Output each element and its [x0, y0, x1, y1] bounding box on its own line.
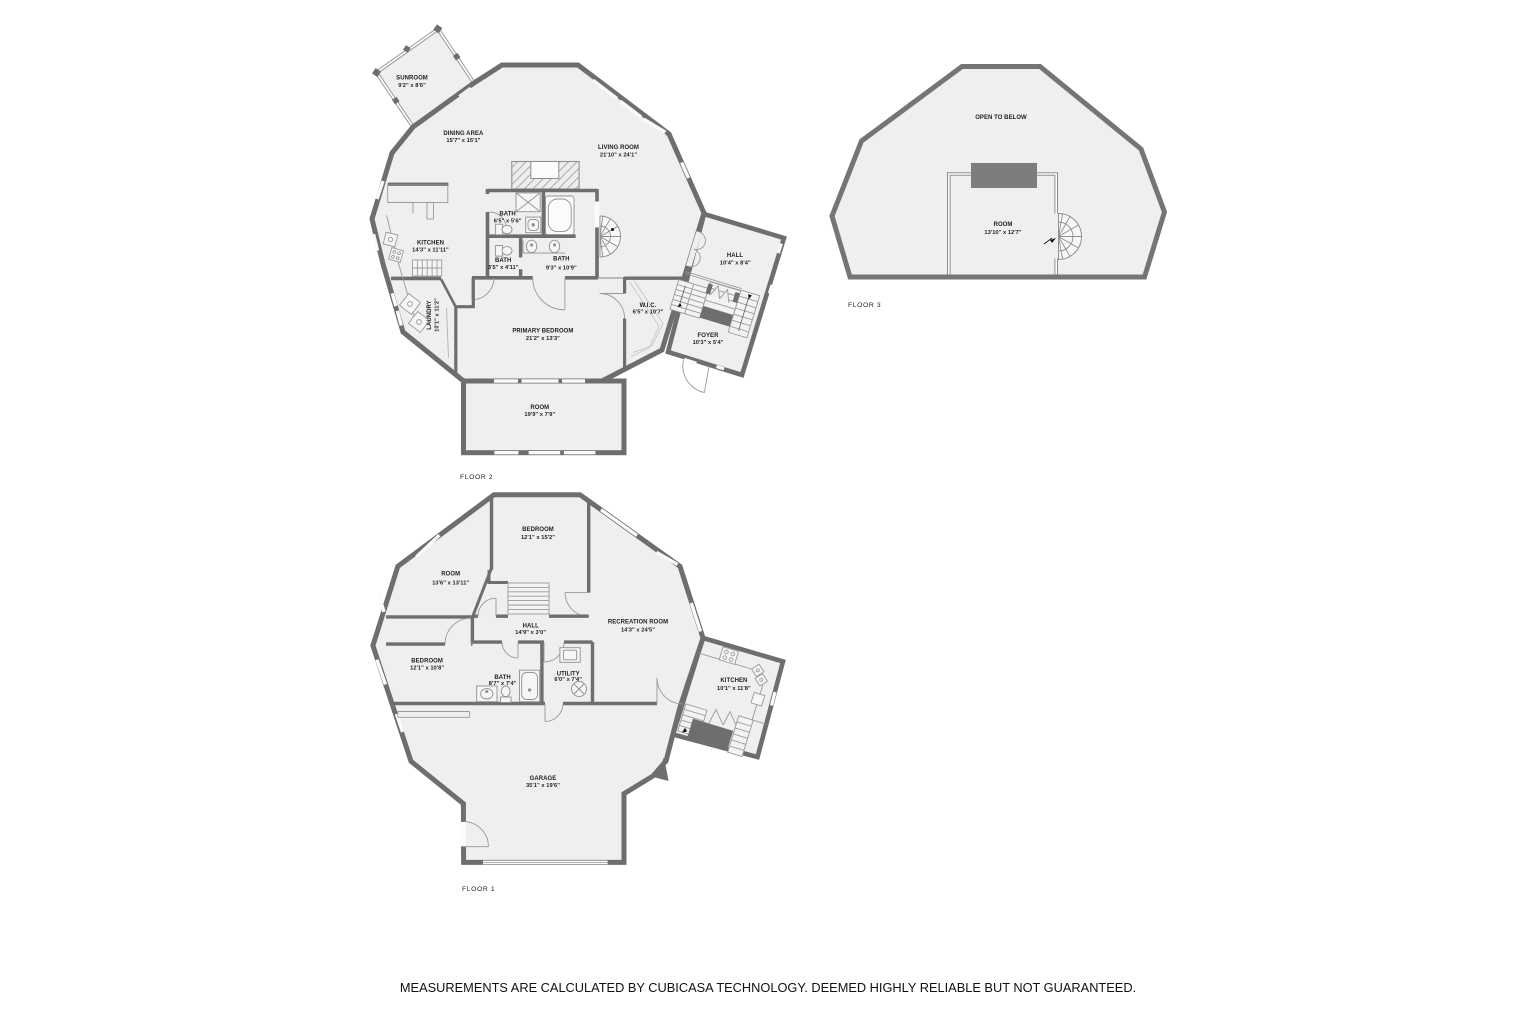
svg-text:BATH: BATH — [499, 212, 515, 218]
svg-text:HALL: HALL — [727, 253, 743, 259]
svg-text:HALL: HALL — [523, 624, 539, 630]
svg-text:14'9" x 3'0": 14'9" x 3'0" — [515, 630, 546, 636]
svg-text:14'3" x 24'5": 14'3" x 24'5" — [621, 628, 655, 634]
svg-text:ROOM: ROOM — [530, 405, 549, 411]
svg-text:9'2" x 8'6": 9'2" x 8'6" — [398, 83, 426, 89]
svg-text:10'3" x 5'4": 10'3" x 5'4" — [693, 340, 724, 346]
svg-text:8'7" x 7'4": 8'7" x 7'4" — [489, 681, 517, 687]
svg-text:BEDROOM: BEDROOM — [411, 659, 443, 665]
svg-text:FLOOR 1: FLOOR 1 — [462, 886, 495, 893]
svg-text:BATH: BATH — [495, 258, 511, 264]
svg-text:15'7" x 15'1": 15'7" x 15'1" — [446, 138, 480, 144]
svg-text:FLOOR 2: FLOOR 2 — [460, 474, 493, 481]
svg-text:13'6" x 13'11": 13'6" x 13'11" — [432, 581, 469, 587]
svg-text:ROOM: ROOM — [441, 572, 460, 578]
svg-text:21'10" x 24'1": 21'10" x 24'1" — [600, 152, 638, 158]
svg-text:W.I.C.: W.I.C. — [640, 303, 657, 309]
svg-text:13'10" x 12'7": 13'10" x 12'7" — [984, 230, 1022, 236]
svg-text:PRIMARY BEDROOM: PRIMARY BEDROOM — [512, 329, 573, 335]
svg-text:10'4" x 8'4": 10'4" x 8'4" — [720, 260, 751, 266]
svg-text:KITCHEN: KITCHEN — [417, 241, 444, 247]
svg-text:MEASUREMENTS ARE CALCULATED BY: MEASUREMENTS ARE CALCULATED BY CUBICASA … — [400, 980, 1136, 995]
svg-text:LIVING ROOM: LIVING ROOM — [598, 145, 639, 151]
svg-text:12'1" x 10'8": 12'1" x 10'8" — [410, 666, 444, 672]
svg-text:6'0" x 7'4": 6'0" x 7'4" — [554, 677, 582, 683]
svg-text:6'5" x 10'7": 6'5" x 10'7" — [633, 310, 664, 316]
svg-text:FLOOR 3: FLOOR 3 — [848, 302, 881, 309]
svg-text:KITCHEN: KITCHEN — [720, 678, 747, 684]
svg-text:12'1" x 15'2": 12'1" x 15'2" — [521, 535, 555, 541]
svg-text:14'3" x 11'11": 14'3" x 11'11" — [412, 248, 449, 254]
svg-text:21'2" x 13'3": 21'2" x 13'3" — [526, 336, 560, 342]
svg-text:OPEN TO BELOW: OPEN TO BELOW — [975, 115, 1027, 121]
svg-text:BATH: BATH — [553, 257, 569, 263]
svg-text:ROOM: ROOM — [994, 222, 1013, 228]
svg-text:35'1" x 19'6": 35'1" x 19'6" — [526, 783, 560, 789]
svg-text:RECREATION ROOM: RECREATION ROOM — [608, 620, 668, 626]
svg-text:BEDROOM: BEDROOM — [522, 527, 554, 533]
svg-text:SUNROOM: SUNROOM — [396, 76, 428, 82]
svg-text:6'5" x 5'6": 6'5" x 5'6" — [494, 219, 522, 225]
svg-text:9'3" x 10'9": 9'3" x 10'9" — [546, 266, 577, 272]
svg-text:3'5" x 4'11": 3'5" x 4'11" — [488, 265, 519, 271]
svg-text:FOYER: FOYER — [698, 333, 720, 339]
svg-text:19'9" x 7'9": 19'9" x 7'9" — [524, 412, 555, 418]
svg-text:10'1" x 11'8": 10'1" x 11'8" — [717, 686, 751, 692]
svg-text:DINING AREA: DINING AREA — [443, 131, 484, 137]
svg-text:LAUNDRY: LAUNDRY — [427, 300, 433, 329]
svg-text:10'1" x 11'2": 10'1" x 11'2" — [435, 298, 441, 332]
svg-text:GARAGE: GARAGE — [530, 776, 557, 782]
